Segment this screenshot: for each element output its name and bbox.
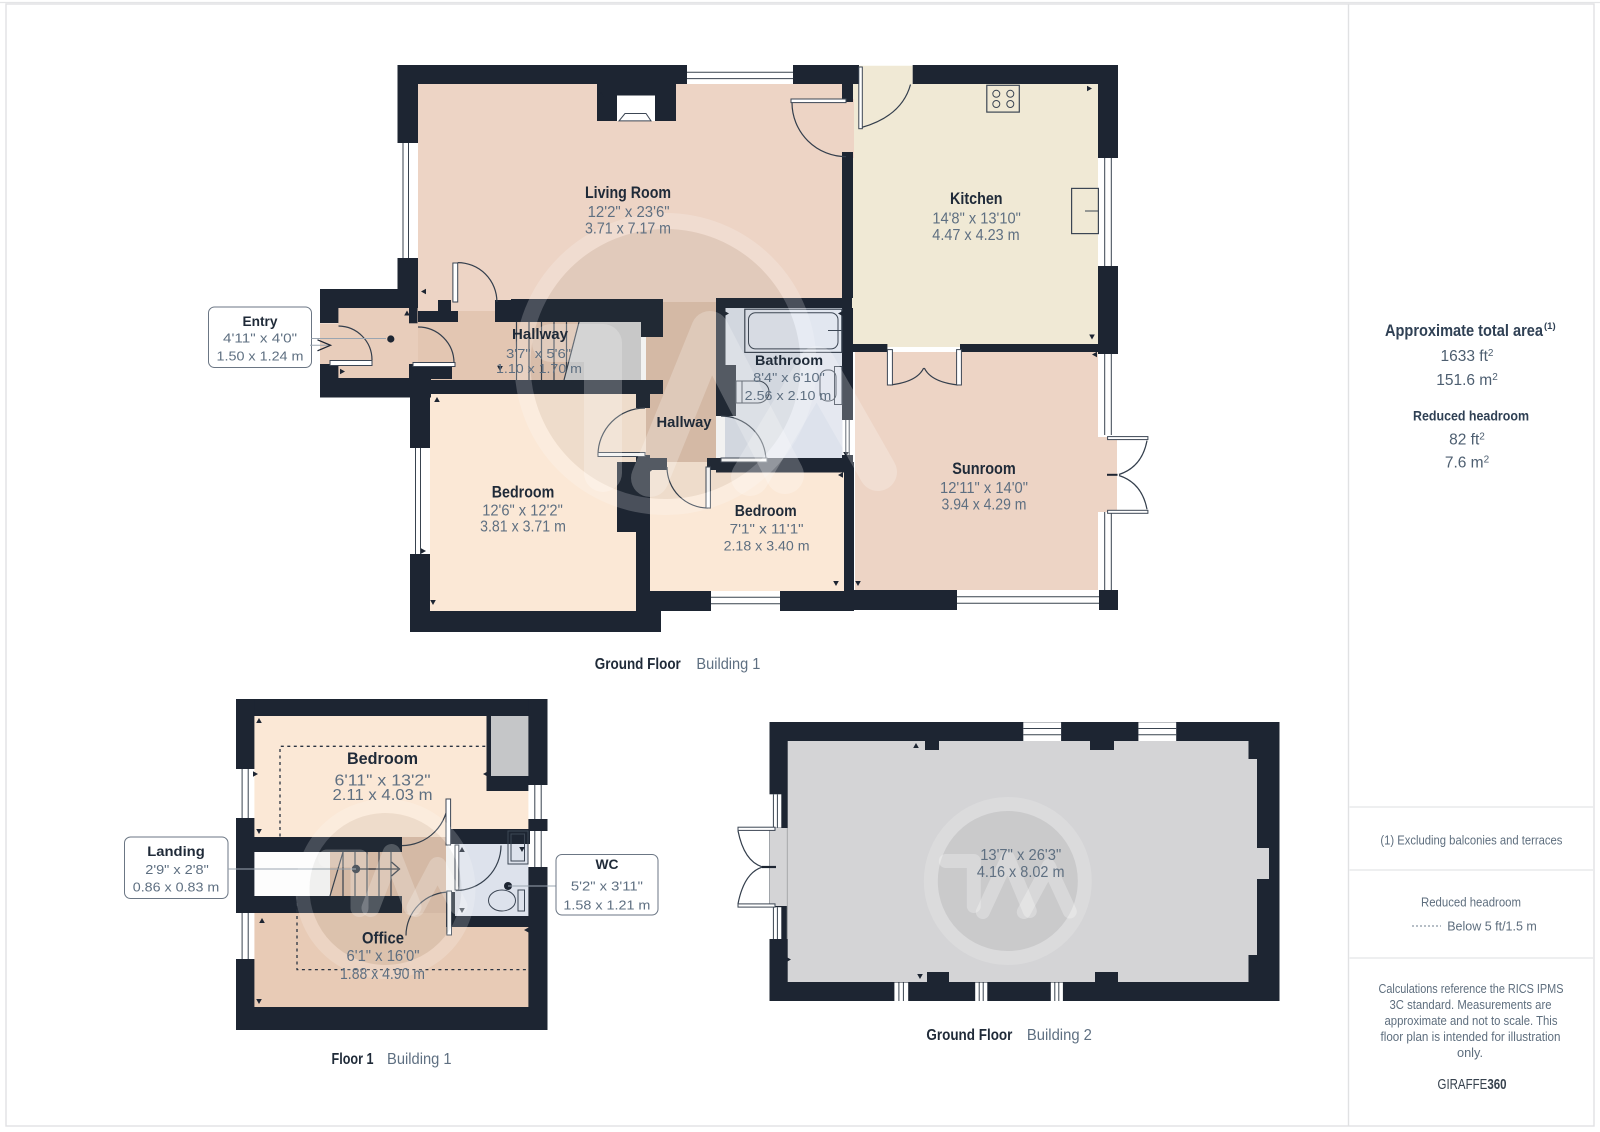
- svg-text:2.56 x 2.10 m: 2.56 x 2.10 m: [745, 388, 832, 403]
- svg-text:1.58 x 1.21 m: 1.58 x 1.21 m: [563, 898, 650, 913]
- svg-text:3.71 x 7.17 m: 3.71 x 7.17 m: [585, 221, 671, 238]
- svg-text:1.50 x 1.24 m: 1.50 x 1.24 m: [217, 348, 304, 363]
- svg-text:151.6 m2: 151.6 m2: [1436, 372, 1498, 389]
- svg-text:Floor 1: Floor 1: [332, 1051, 374, 1068]
- svg-text:2.18 x 3.40 m: 2.18 x 3.40 m: [724, 537, 810, 553]
- svg-text:Bedroom: Bedroom: [347, 749, 418, 768]
- svg-text:1.88 x 4.90 m: 1.88 x 4.90 m: [340, 966, 425, 983]
- svg-text:Building 1: Building 1: [387, 1051, 452, 1068]
- svg-text:0.86 x 0.83 m: 0.86 x 0.83 m: [133, 880, 220, 895]
- svg-text:14'8" x 13'10": 14'8" x 13'10": [932, 211, 1021, 228]
- svg-text:12'2" x 23'6": 12'2" x 23'6": [588, 204, 670, 221]
- svg-text:12'6" x 12'2": 12'6" x 12'2": [482, 503, 563, 520]
- svg-text:3.81 x 3.71 m: 3.81 x 3.71 m: [480, 518, 566, 535]
- svg-text:Bedroom: Bedroom: [735, 503, 797, 520]
- svg-text:Building 1: Building 1: [696, 656, 760, 673]
- svg-text:4'11" x 4'0": 4'11" x 4'0": [223, 331, 297, 346]
- svg-text:3.94 x 4.29 m: 3.94 x 4.29 m: [942, 497, 1027, 514]
- svg-text:Bathroom: Bathroom: [755, 353, 823, 368]
- svg-text:GIRAFFE360: GIRAFFE360: [1438, 1077, 1507, 1093]
- svg-text:Landing: Landing: [147, 844, 205, 859]
- svg-text:8'4" x 6'10": 8'4" x 6'10": [753, 370, 825, 385]
- svg-text:(1): (1): [1544, 321, 1556, 332]
- svg-text:4.16 x 8.02 m: 4.16 x 8.02 m: [977, 864, 1065, 881]
- svg-text:Building 2: Building 2: [1027, 1027, 1092, 1044]
- svg-text:Office: Office: [362, 928, 404, 947]
- svg-text:floor plan is intended for ill: floor plan is intended for illustration: [1381, 1029, 1561, 1044]
- svg-text:Bedroom: Bedroom: [492, 483, 555, 502]
- svg-text:7'1" x 11'1": 7'1" x 11'1": [730, 521, 804, 537]
- svg-text:Ground Floor: Ground Floor: [595, 656, 681, 673]
- svg-text:Reduced headroom: Reduced headroom: [1421, 895, 1521, 910]
- svg-text:Sunroom: Sunroom: [952, 459, 1016, 478]
- svg-text:12'11" x 14'0": 12'11" x 14'0": [940, 480, 1028, 497]
- svg-text:Ground Floor: Ground Floor: [926, 1027, 1012, 1044]
- svg-text:1.10 x 1.70 m: 1.10 x 1.70 m: [496, 361, 582, 376]
- svg-text:1633 ft2: 1633 ft2: [1441, 348, 1494, 365]
- svg-text:3C standard. Measurements are: 3C standard. Measurements are: [1390, 997, 1552, 1012]
- svg-text:4.47 x 4.23 m: 4.47 x 4.23 m: [932, 227, 1019, 244]
- svg-text:only.: only.: [1457, 1045, 1483, 1060]
- svg-text:6'1" x 16'0": 6'1" x 16'0": [347, 948, 420, 965]
- svg-text:approximate and not to scale.: approximate and not to scale. This: [1385, 1013, 1558, 1028]
- svg-text:5'2" x 3'11": 5'2" x 3'11": [571, 878, 643, 893]
- svg-text:Entry: Entry: [243, 314, 278, 329]
- svg-text:2'9" x 2'8": 2'9" x 2'8": [145, 862, 209, 877]
- svg-text:Hallway: Hallway: [512, 326, 569, 343]
- svg-text:13'7" x 26'3": 13'7" x 26'3": [980, 847, 1061, 864]
- svg-text:7.6 m2: 7.6 m2: [1445, 455, 1490, 472]
- svg-text:2.11 x 4.03 m: 2.11 x 4.03 m: [333, 787, 433, 804]
- svg-text:Reduced headroom: Reduced headroom: [1413, 408, 1529, 424]
- svg-text:Calculations reference the RIC: Calculations reference the RICS IPMS: [1379, 981, 1564, 996]
- svg-text:Kitchen: Kitchen: [950, 189, 1003, 208]
- svg-text:Below 5 ft/1.5 m: Below 5 ft/1.5 m: [1447, 920, 1537, 934]
- svg-text:Approximate total area: Approximate total area: [1385, 322, 1544, 340]
- svg-text:(1) Excluding balconies and te: (1) Excluding balconies and terraces: [1380, 833, 1562, 848]
- svg-text:3'7" x 5'6": 3'7" x 5'6": [506, 346, 571, 361]
- svg-text:Hallway: Hallway: [657, 414, 713, 431]
- svg-text:WC: WC: [596, 857, 619, 872]
- svg-text:Living Room: Living Room: [585, 183, 671, 202]
